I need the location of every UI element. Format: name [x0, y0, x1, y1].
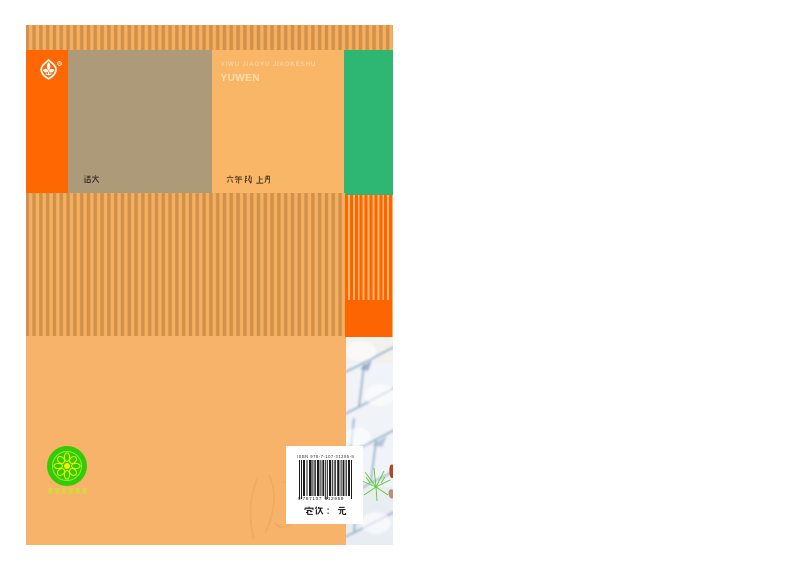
- svg-text:R: R: [58, 62, 61, 66]
